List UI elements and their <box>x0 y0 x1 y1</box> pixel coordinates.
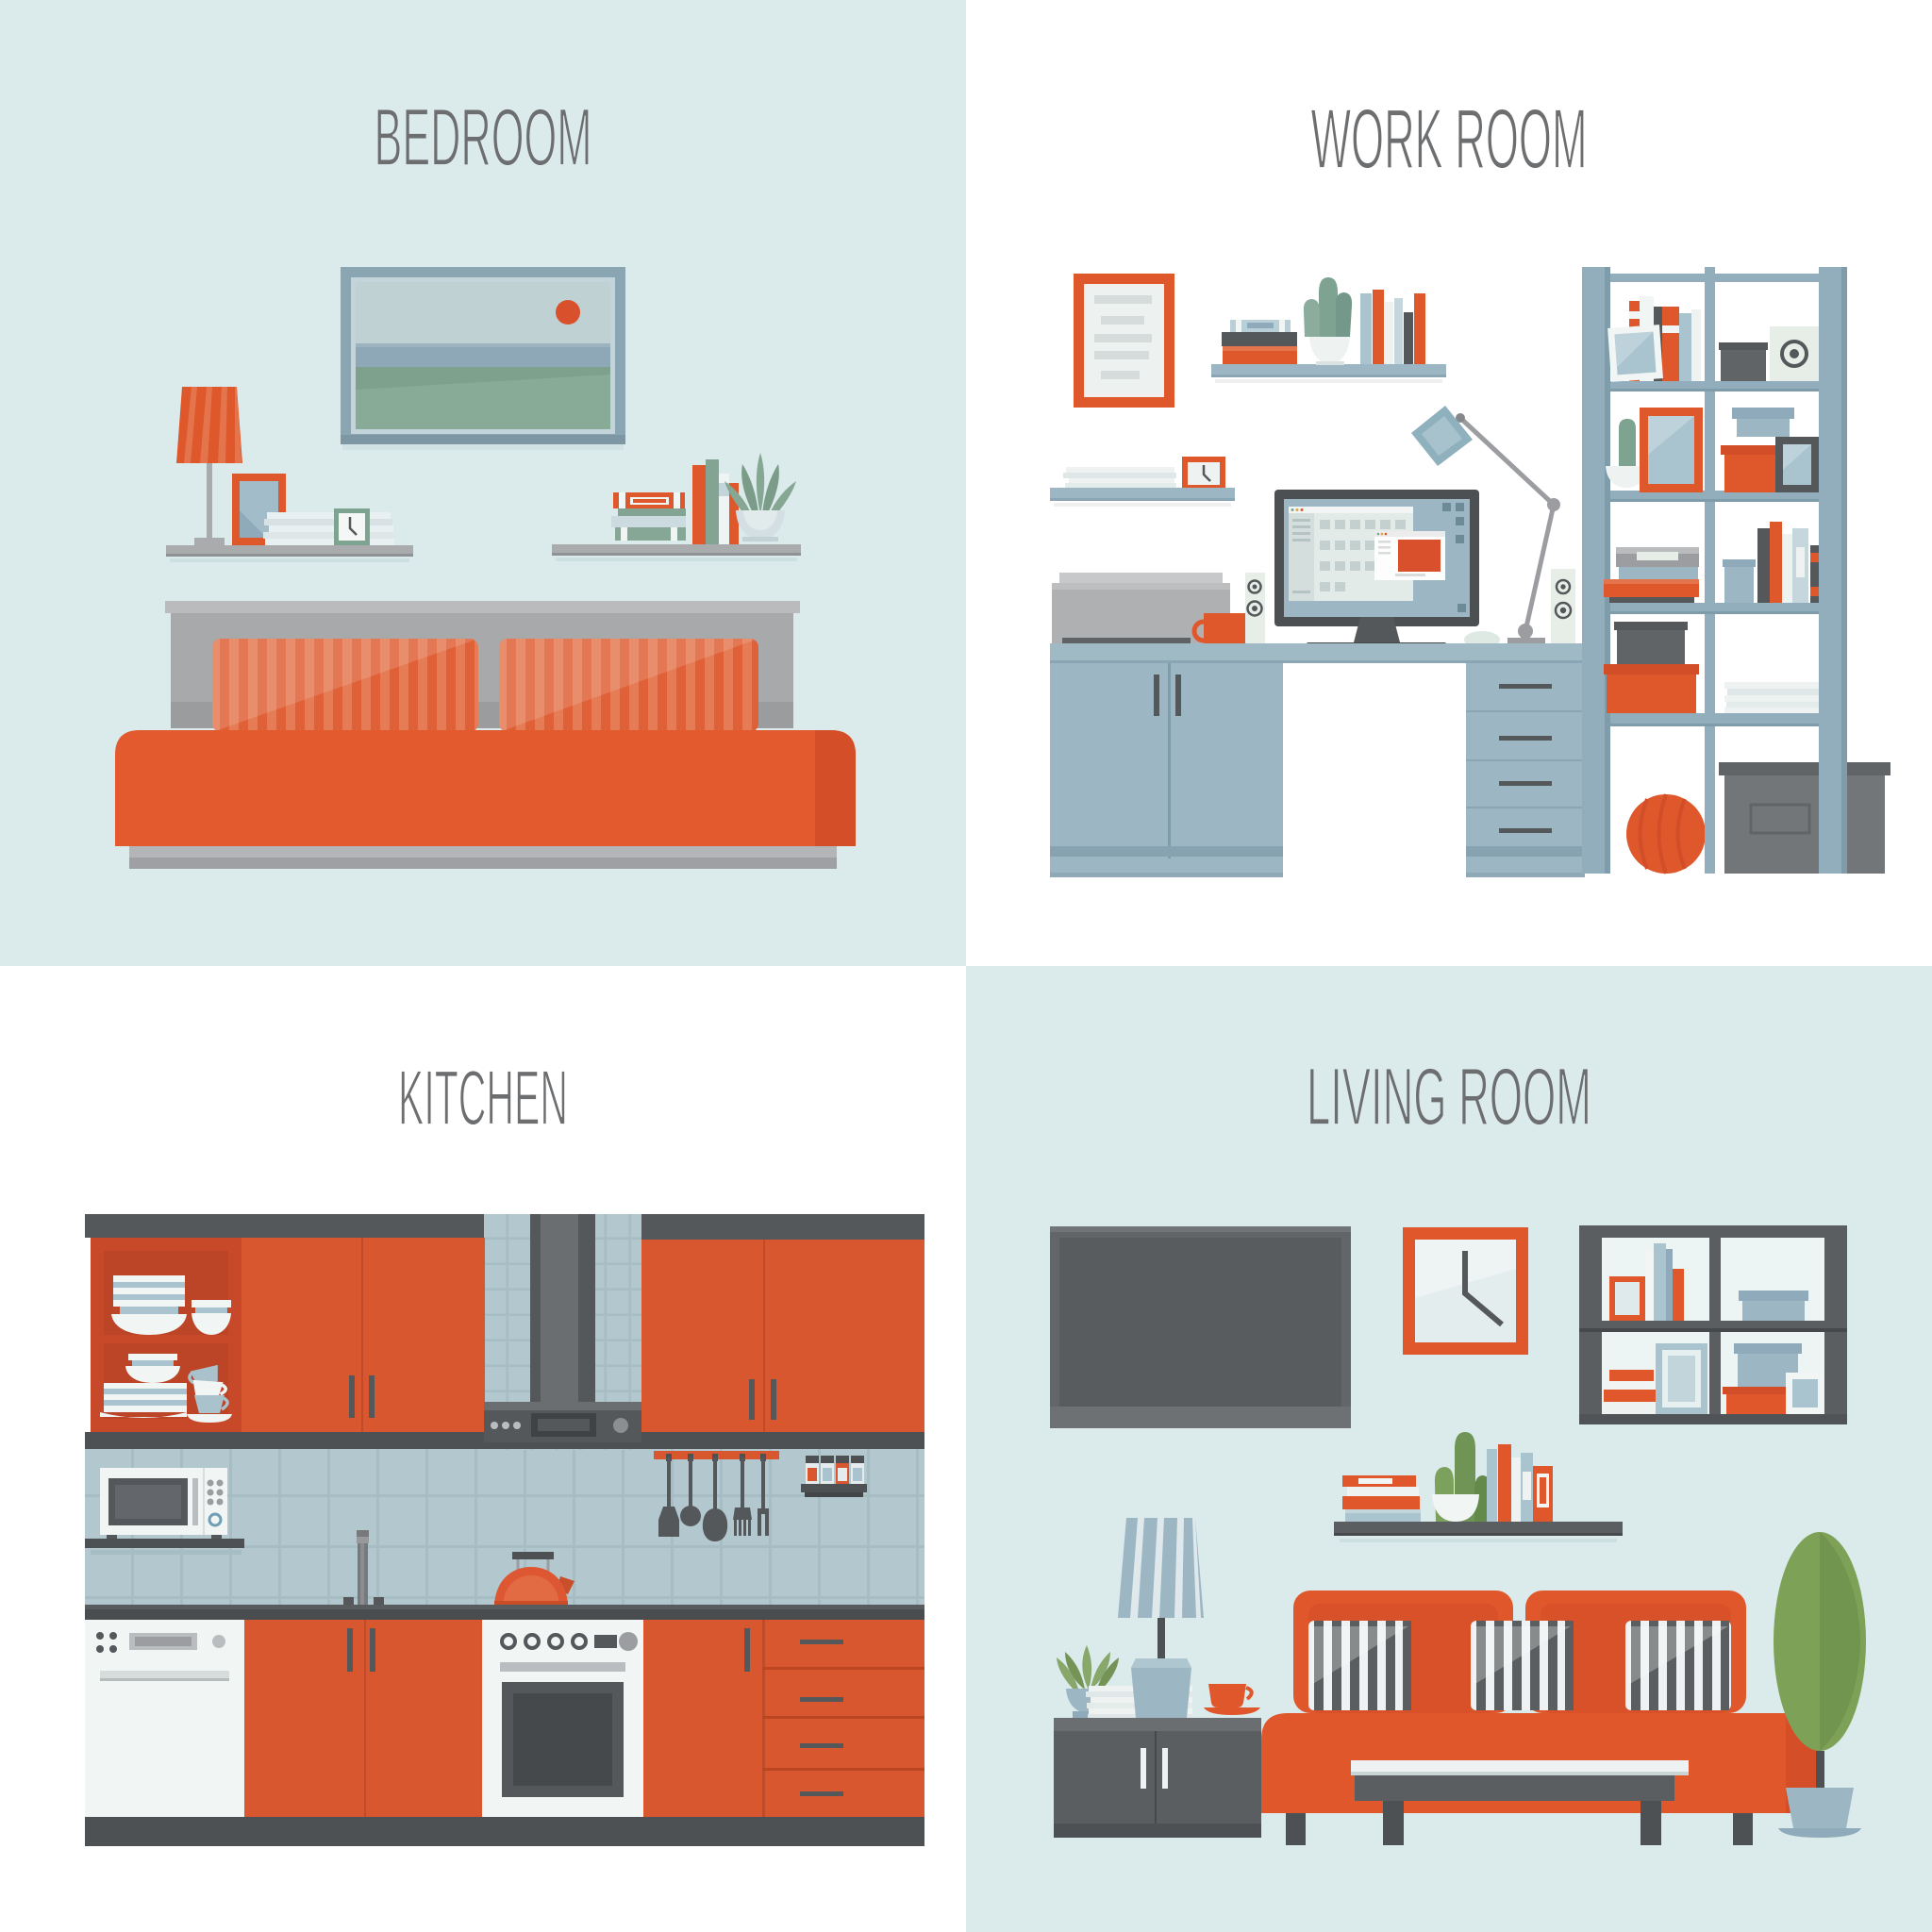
svg-text:BEDROOM: BEDROOM <box>375 92 592 183</box>
svg-text:WORK ROOM: WORK ROOM <box>1311 92 1588 187</box>
svg-text:KITCHEN: KITCHEN <box>398 1054 568 1141</box>
svg-text:LIVING ROOM: LIVING ROOM <box>1307 1052 1591 1142</box>
